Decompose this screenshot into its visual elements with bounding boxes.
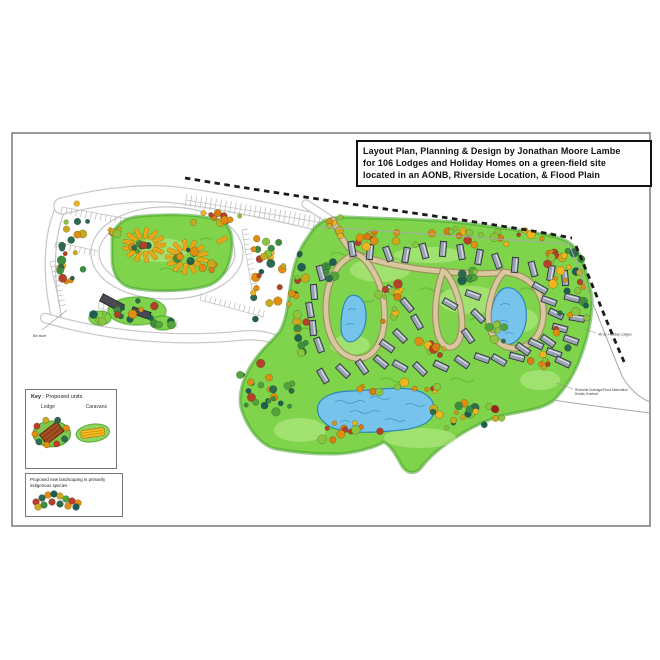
plan-page: 46 no. Holiday LodgesRiverside Drainage/… bbox=[0, 0, 660, 660]
lodge-unit bbox=[309, 320, 316, 335]
bin-store-note: Bin store bbox=[33, 334, 46, 338]
lodge-key-icon bbox=[29, 412, 74, 454]
caravans-key-icon bbox=[74, 418, 112, 448]
legend-title: Key : Proposed units bbox=[31, 394, 115, 400]
legend-labels: Lodge Caravans bbox=[27, 404, 115, 410]
title-line-2: for 106 Lodges and Holiday Homes on a gr… bbox=[363, 157, 645, 169]
caravans-label: Caravans bbox=[86, 404, 107, 410]
legend-proposed-units: Key : Proposed units Lodge Caravans bbox=[25, 389, 117, 469]
holiday-lodges-count-note: 46 no. Holiday Lodges bbox=[598, 333, 632, 337]
caravan-unit bbox=[155, 243, 166, 247]
lodge-unit bbox=[511, 257, 518, 272]
lodge-label: Lodge bbox=[41, 404, 55, 410]
landscaping-note: Proposed new landscaping in primarily in… bbox=[30, 477, 118, 488]
landscaping-key-icon bbox=[30, 489, 92, 511]
legend-icons bbox=[27, 412, 115, 454]
lodge-unit bbox=[439, 241, 446, 256]
drainage-note-line2: Details Overleaf bbox=[575, 392, 598, 396]
title-line-1: Layout Plan, Planning & Design by Jonath… bbox=[363, 145, 645, 157]
site-plan-drawing: 46 no. Holiday LodgesRiverside Drainage/… bbox=[0, 0, 660, 660]
lodge-unit bbox=[310, 284, 317, 299]
title-block: Layout Plan, Planning & Design by Jonath… bbox=[356, 140, 652, 187]
title-line-3: located in an AONB, Riverside Location, … bbox=[363, 169, 645, 181]
legend-landscaping: Proposed new landscaping in primarily in… bbox=[25, 473, 123, 517]
